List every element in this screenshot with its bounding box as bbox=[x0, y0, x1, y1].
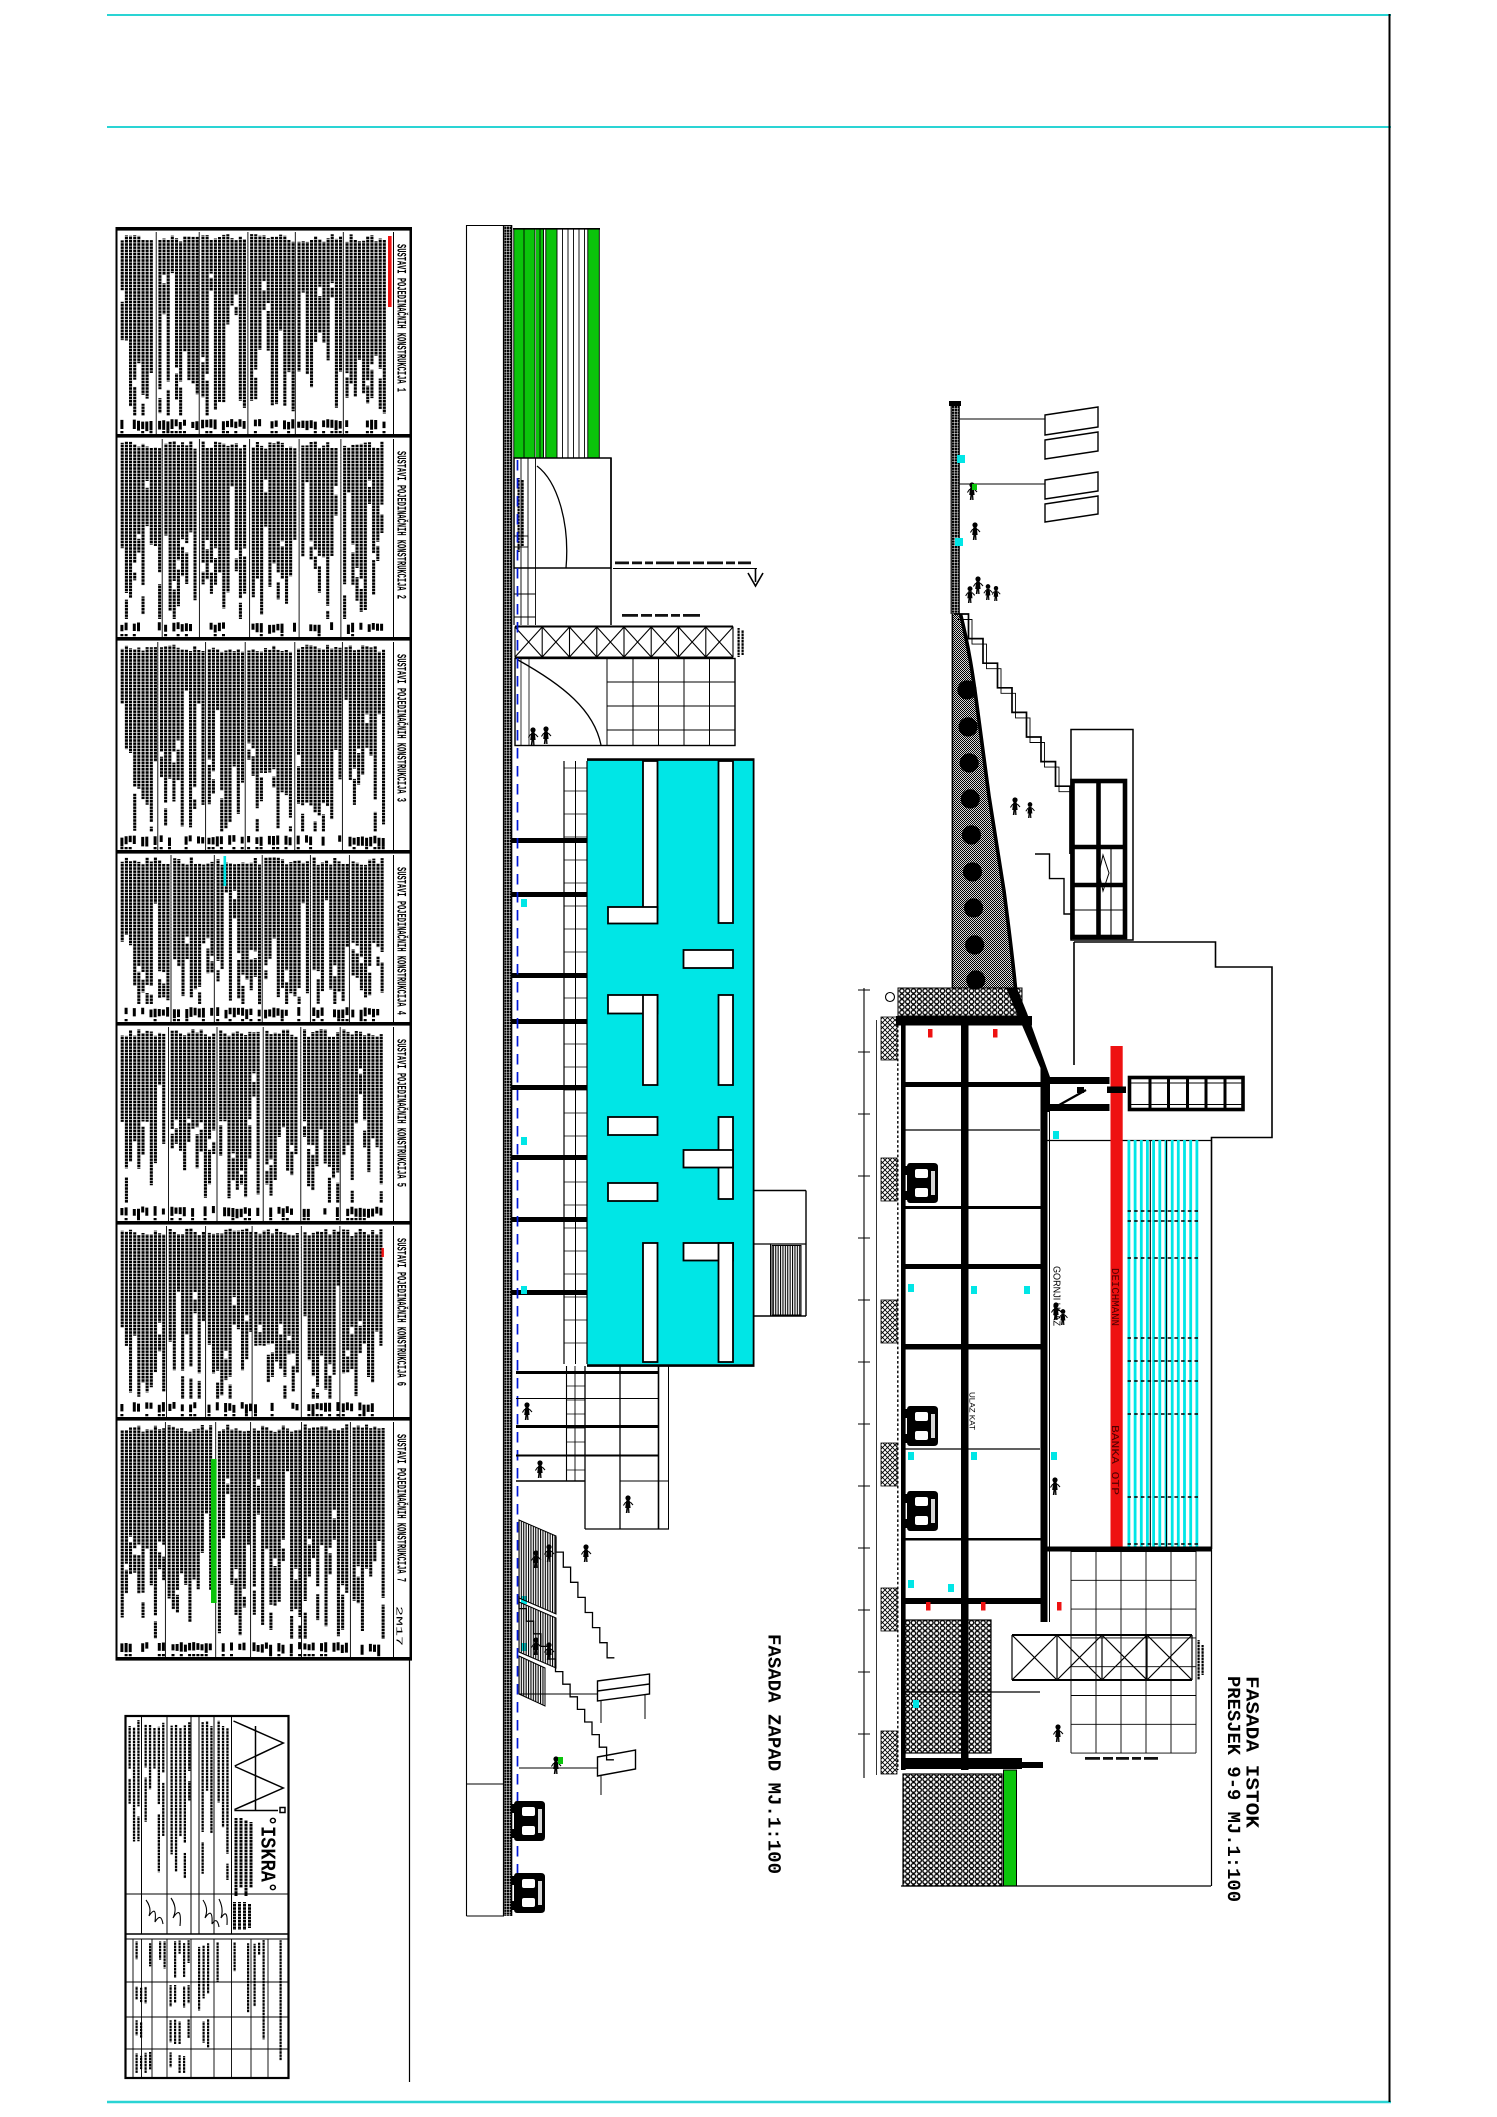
svg-text:SUSTAVI POJEDINAČNIH KONSTRUKC: SUSTAVI POJEDINAČNIH KONSTRUKCIJA 3 bbox=[394, 654, 409, 802]
svg-text:ULAZ KAT: ULAZ KAT bbox=[968, 1392, 977, 1430]
svg-text:°ISKRA°: °ISKRA° bbox=[255, 1815, 278, 1893]
svg-text:SUSTAVI POJEDINAČNIH KONSTRUKC: SUSTAVI POJEDINAČNIH KONSTRUKCIJA 1 bbox=[394, 244, 409, 392]
svg-text:2M17: 2M17 bbox=[394, 1606, 404, 1646]
svg-text:BANKA OTP: BANKA OTP bbox=[1108, 1425, 1120, 1495]
svg-text:GORNJI ULAZ: GORNJI ULAZ bbox=[1051, 1266, 1062, 1326]
svg-text:SUSTAVI POJEDINAČNIH KONSTRUKC: SUSTAVI POJEDINAČNIH KONSTRUKCIJA 5 bbox=[394, 1039, 409, 1187]
svg-text:PRESJEK 9-9 MJ.1:100: PRESJEK 9-9 MJ.1:100 bbox=[1222, 1676, 1243, 1902]
svg-text:SUSTAVI POJEDINAČNIH KONSTRUKC: SUSTAVI POJEDINAČNIH KONSTRUKCIJA 6 bbox=[394, 1238, 409, 1386]
svg-text:SUSTAVI POJEDINAČNIH KONSTRUKC: SUSTAVI POJEDINAČNIH KONSTRUKCIJA 7 bbox=[394, 1434, 409, 1582]
svg-text:SUSTAVI POJEDINAČNIH KONSTRUKC: SUSTAVI POJEDINAČNIH KONSTRUKCIJA 2 bbox=[394, 451, 409, 599]
svg-text:SUSTAVI POJEDINAČNIH KONSTRUKC: SUSTAVI POJEDINAČNIH KONSTRUKCIJA 4 bbox=[394, 867, 409, 1015]
svg-text:FASADA ZAPAD MJ.1:100: FASADA ZAPAD MJ.1:100 bbox=[763, 1634, 784, 1874]
svg-text:DEICHMANN: DEICHMANN bbox=[1108, 1268, 1120, 1326]
